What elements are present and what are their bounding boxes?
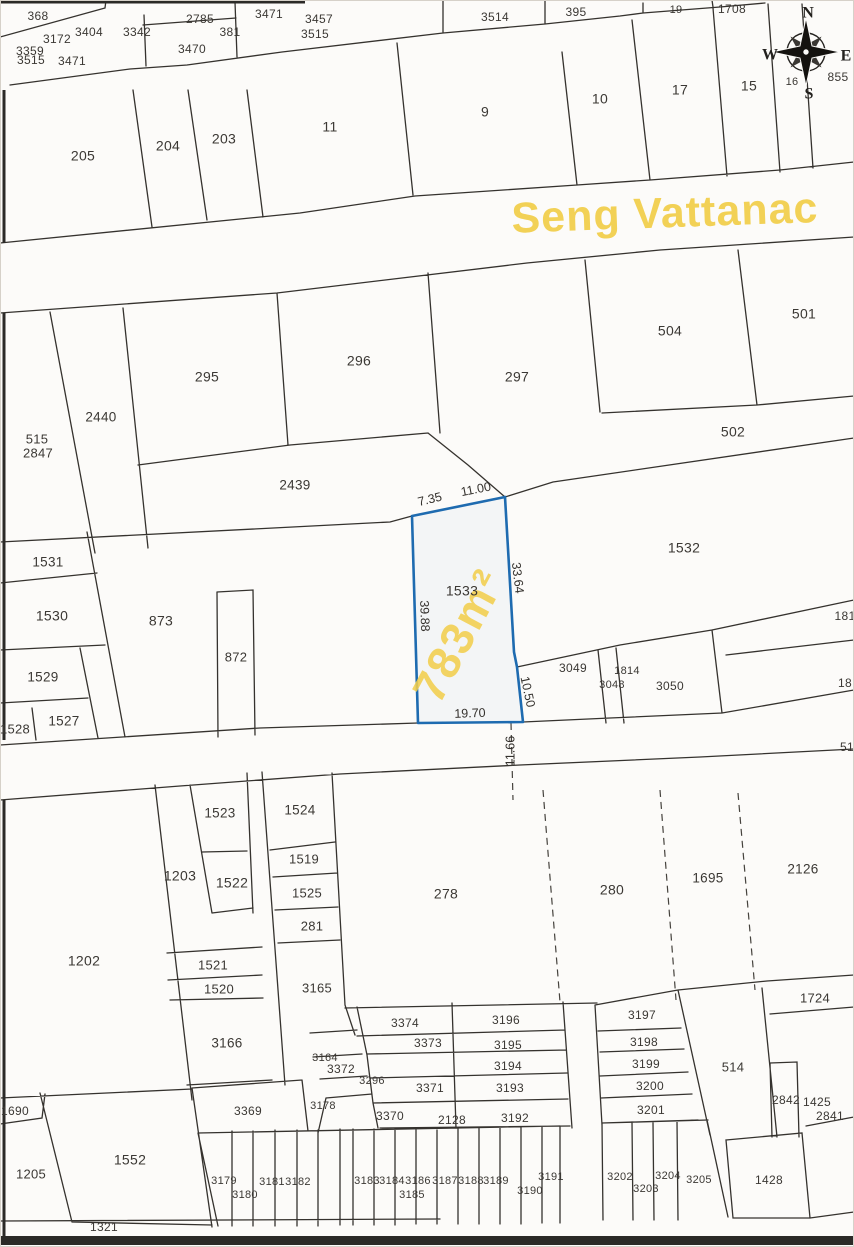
parcel-label-3049: 3049 bbox=[559, 661, 587, 675]
parcel-label-1814: 1814 bbox=[614, 665, 640, 677]
parcel-label-3181: 3181 bbox=[259, 1176, 285, 1188]
parcel-label-9: 9 bbox=[481, 104, 489, 120]
parcel-label-501: 501 bbox=[792, 306, 816, 322]
cadastral-map: Seng Vattanac 783m² N E S W 368335931723… bbox=[0, 0, 854, 1247]
parcel-label-1532: 1532 bbox=[668, 540, 700, 556]
parcel-label-1205: 1205 bbox=[16, 1166, 46, 1181]
parcel-label-3197: 3197 bbox=[628, 1008, 656, 1022]
compass-north-label: N bbox=[802, 5, 814, 22]
parcel-label-2440: 2440 bbox=[85, 410, 116, 425]
compass-east-label: E bbox=[841, 48, 852, 65]
parcel-label-1519: 1519 bbox=[289, 851, 319, 866]
parcel-label-1724: 1724 bbox=[800, 990, 830, 1005]
dimension-label-39.88: 39.88 bbox=[417, 600, 432, 632]
parcel-label-278: 278 bbox=[434, 886, 458, 902]
parcel-label-3342: 3342 bbox=[123, 25, 151, 39]
parcel-label-1202: 1202 bbox=[68, 953, 100, 969]
parcel-label-296: 296 bbox=[347, 353, 371, 369]
parcel-label-1525: 1525 bbox=[292, 885, 322, 900]
parcel-label-3457: 3457 bbox=[305, 12, 333, 26]
parcel-label-368: 368 bbox=[28, 9, 49, 23]
parcel-label-3191: 3191 bbox=[538, 1171, 564, 1183]
parcel-label-51: 51 bbox=[840, 740, 854, 754]
parcel-label-3373: 3373 bbox=[414, 1036, 442, 1050]
parcel-label-3183: 3183 bbox=[354, 1175, 380, 1187]
parcel-label-3048: 3048 bbox=[599, 679, 625, 691]
parcel-label-3514: 3514 bbox=[481, 10, 509, 24]
parcel-label-3471: 3471 bbox=[255, 7, 283, 21]
parcel-label-3185: 3185 bbox=[399, 1189, 425, 1201]
parcel-label-15: 15 bbox=[741, 78, 757, 94]
parcel-label-3515: 3515 bbox=[301, 27, 329, 41]
parcel-label-2847: 2847 bbox=[23, 445, 53, 460]
parcel-label-3404: 3404 bbox=[75, 25, 103, 39]
parcel-label-297: 297 bbox=[505, 369, 529, 385]
parcel-label-1530: 1530 bbox=[36, 608, 68, 624]
parcel-label-1521: 1521 bbox=[198, 957, 228, 972]
parcel-label-3203: 3203 bbox=[633, 1183, 659, 1195]
parcel-label-3166: 3166 bbox=[211, 1036, 242, 1051]
parcel-label-502: 502 bbox=[721, 424, 745, 440]
parcel-label-1522: 1522 bbox=[216, 875, 248, 891]
parcel-label-855: 855 bbox=[828, 70, 849, 84]
parcel-label-19: 19 bbox=[670, 4, 683, 16]
parcel-label-2128: 2128 bbox=[438, 1113, 466, 1127]
bottom-road-band bbox=[0, 1236, 854, 1245]
parcel-label-1690: 1690 bbox=[1, 1104, 29, 1118]
parcel-label-10: 10 bbox=[592, 91, 608, 107]
parcel-label-1529: 1529 bbox=[27, 670, 58, 685]
parcel-label-3374: 3374 bbox=[391, 1016, 419, 1030]
parcel-label-1533: 1533 bbox=[446, 583, 478, 599]
parcel-label-2439: 2439 bbox=[279, 478, 310, 493]
parcel-label-3194: 3194 bbox=[494, 1059, 522, 1073]
parcel-label-3172: 3172 bbox=[43, 32, 71, 46]
parcel-label-181: 181 bbox=[835, 609, 854, 623]
dimension-label-19.70: 19.70 bbox=[454, 706, 486, 721]
parcel-label-2126: 2126 bbox=[787, 862, 818, 877]
parcel-label-3470: 3470 bbox=[178, 42, 206, 56]
parcel-label-1528: 1528 bbox=[0, 721, 30, 736]
parcel-label-1523: 1523 bbox=[204, 806, 235, 821]
parcel-label-504: 504 bbox=[658, 323, 682, 339]
parcel-label-514: 514 bbox=[722, 1059, 745, 1074]
dimension-label-11.66: 11.66 bbox=[503, 736, 517, 766]
parcel-label-3189: 3189 bbox=[483, 1175, 509, 1187]
parcel-label-3371: 3371 bbox=[416, 1081, 444, 1095]
parcel-label-3190: 3190 bbox=[517, 1185, 543, 1197]
parcel-label-204: 204 bbox=[156, 138, 180, 154]
parcel-label-295: 295 bbox=[195, 369, 219, 385]
parcel-label-2842: 2842 bbox=[772, 1093, 800, 1107]
parcel-label-203: 203 bbox=[212, 131, 236, 147]
parcel-label-3370: 3370 bbox=[376, 1109, 404, 1123]
parcel-label-3192: 3192 bbox=[501, 1111, 529, 1125]
parcel-label-381: 381 bbox=[220, 25, 241, 39]
parcel-label-3200: 3200 bbox=[636, 1079, 664, 1093]
parcel-label-1428: 1428 bbox=[755, 1173, 783, 1187]
parcel-label-2785: 2785 bbox=[186, 12, 214, 26]
parcel-label-1321: 1321 bbox=[90, 1220, 118, 1234]
parcel-label-3202: 3202 bbox=[607, 1171, 633, 1183]
parcel-label-3196: 3196 bbox=[492, 1013, 520, 1027]
parcel-label-3050: 3050 bbox=[656, 679, 684, 693]
parcel-label-3369: 3369 bbox=[234, 1104, 262, 1118]
parcel-label-1552: 1552 bbox=[114, 1152, 146, 1168]
parcel-label-18: 18 bbox=[838, 676, 852, 690]
parcel-label-3187: 3187 bbox=[432, 1175, 458, 1187]
parcel-label-3188: 3188 bbox=[458, 1175, 484, 1187]
parcel-label-280: 280 bbox=[600, 882, 624, 898]
parcel-label-281: 281 bbox=[301, 918, 324, 933]
parcel-label-3204: 3204 bbox=[655, 1170, 681, 1182]
parcel-label-873: 873 bbox=[149, 613, 173, 629]
compass-hub bbox=[803, 49, 810, 56]
parcel-label-1531: 1531 bbox=[32, 555, 63, 570]
parcel-label-3372: 3372 bbox=[327, 1062, 355, 1076]
parcel-label-3184: 3184 bbox=[379, 1175, 405, 1187]
parcel-label-3182: 3182 bbox=[285, 1176, 311, 1188]
parcel-label-205: 205 bbox=[71, 148, 95, 164]
parcel-label-3195: 3195 bbox=[494, 1038, 522, 1052]
parcel-label-872: 872 bbox=[225, 649, 248, 664]
parcel-label-11: 11 bbox=[322, 119, 337, 135]
parcel-label-17: 17 bbox=[672, 82, 688, 98]
parcel-label-3471: 3471 bbox=[58, 54, 86, 68]
compass-west-label: W bbox=[762, 47, 778, 64]
parcel-label-3205: 3205 bbox=[686, 1174, 712, 1186]
parcel-label-3193: 3193 bbox=[496, 1081, 524, 1095]
parcel-label-1203: 1203 bbox=[164, 868, 196, 884]
parcel-label-2841: 2841 bbox=[816, 1109, 844, 1123]
parcel-label-3296: 3296 bbox=[359, 1075, 385, 1087]
parcel-label-3165: 3165 bbox=[302, 980, 332, 995]
parcel-label-515: 515 bbox=[26, 431, 49, 446]
parcel-label-16: 16 bbox=[786, 76, 799, 88]
parcel-label-1524: 1524 bbox=[284, 803, 315, 818]
parcel-label-3178: 3178 bbox=[310, 1100, 336, 1112]
parcel-label-3199: 3199 bbox=[632, 1057, 660, 1071]
parcel-label-3515: 3515 bbox=[17, 53, 45, 67]
parcel-label-3186: 3186 bbox=[405, 1175, 431, 1187]
parcel-label-1695: 1695 bbox=[692, 871, 723, 886]
parcel-label-1425: 1425 bbox=[803, 1095, 831, 1109]
parcel-label-3180: 3180 bbox=[232, 1189, 258, 1201]
cadastral-map-page: Seng Vattanac 783m² N E S W 368335931723… bbox=[0, 0, 854, 1247]
parcel-label-395: 395 bbox=[566, 5, 587, 19]
parcel-label-1708: 1708 bbox=[718, 2, 746, 16]
compass-south-label: S bbox=[805, 86, 814, 103]
parcel-label-1520: 1520 bbox=[204, 981, 234, 996]
parcel-label-3179: 3179 bbox=[211, 1175, 237, 1187]
parcel-label-3201: 3201 bbox=[637, 1103, 665, 1117]
parcel-label-3198: 3198 bbox=[630, 1035, 658, 1049]
parcel-label-1527: 1527 bbox=[48, 714, 79, 729]
